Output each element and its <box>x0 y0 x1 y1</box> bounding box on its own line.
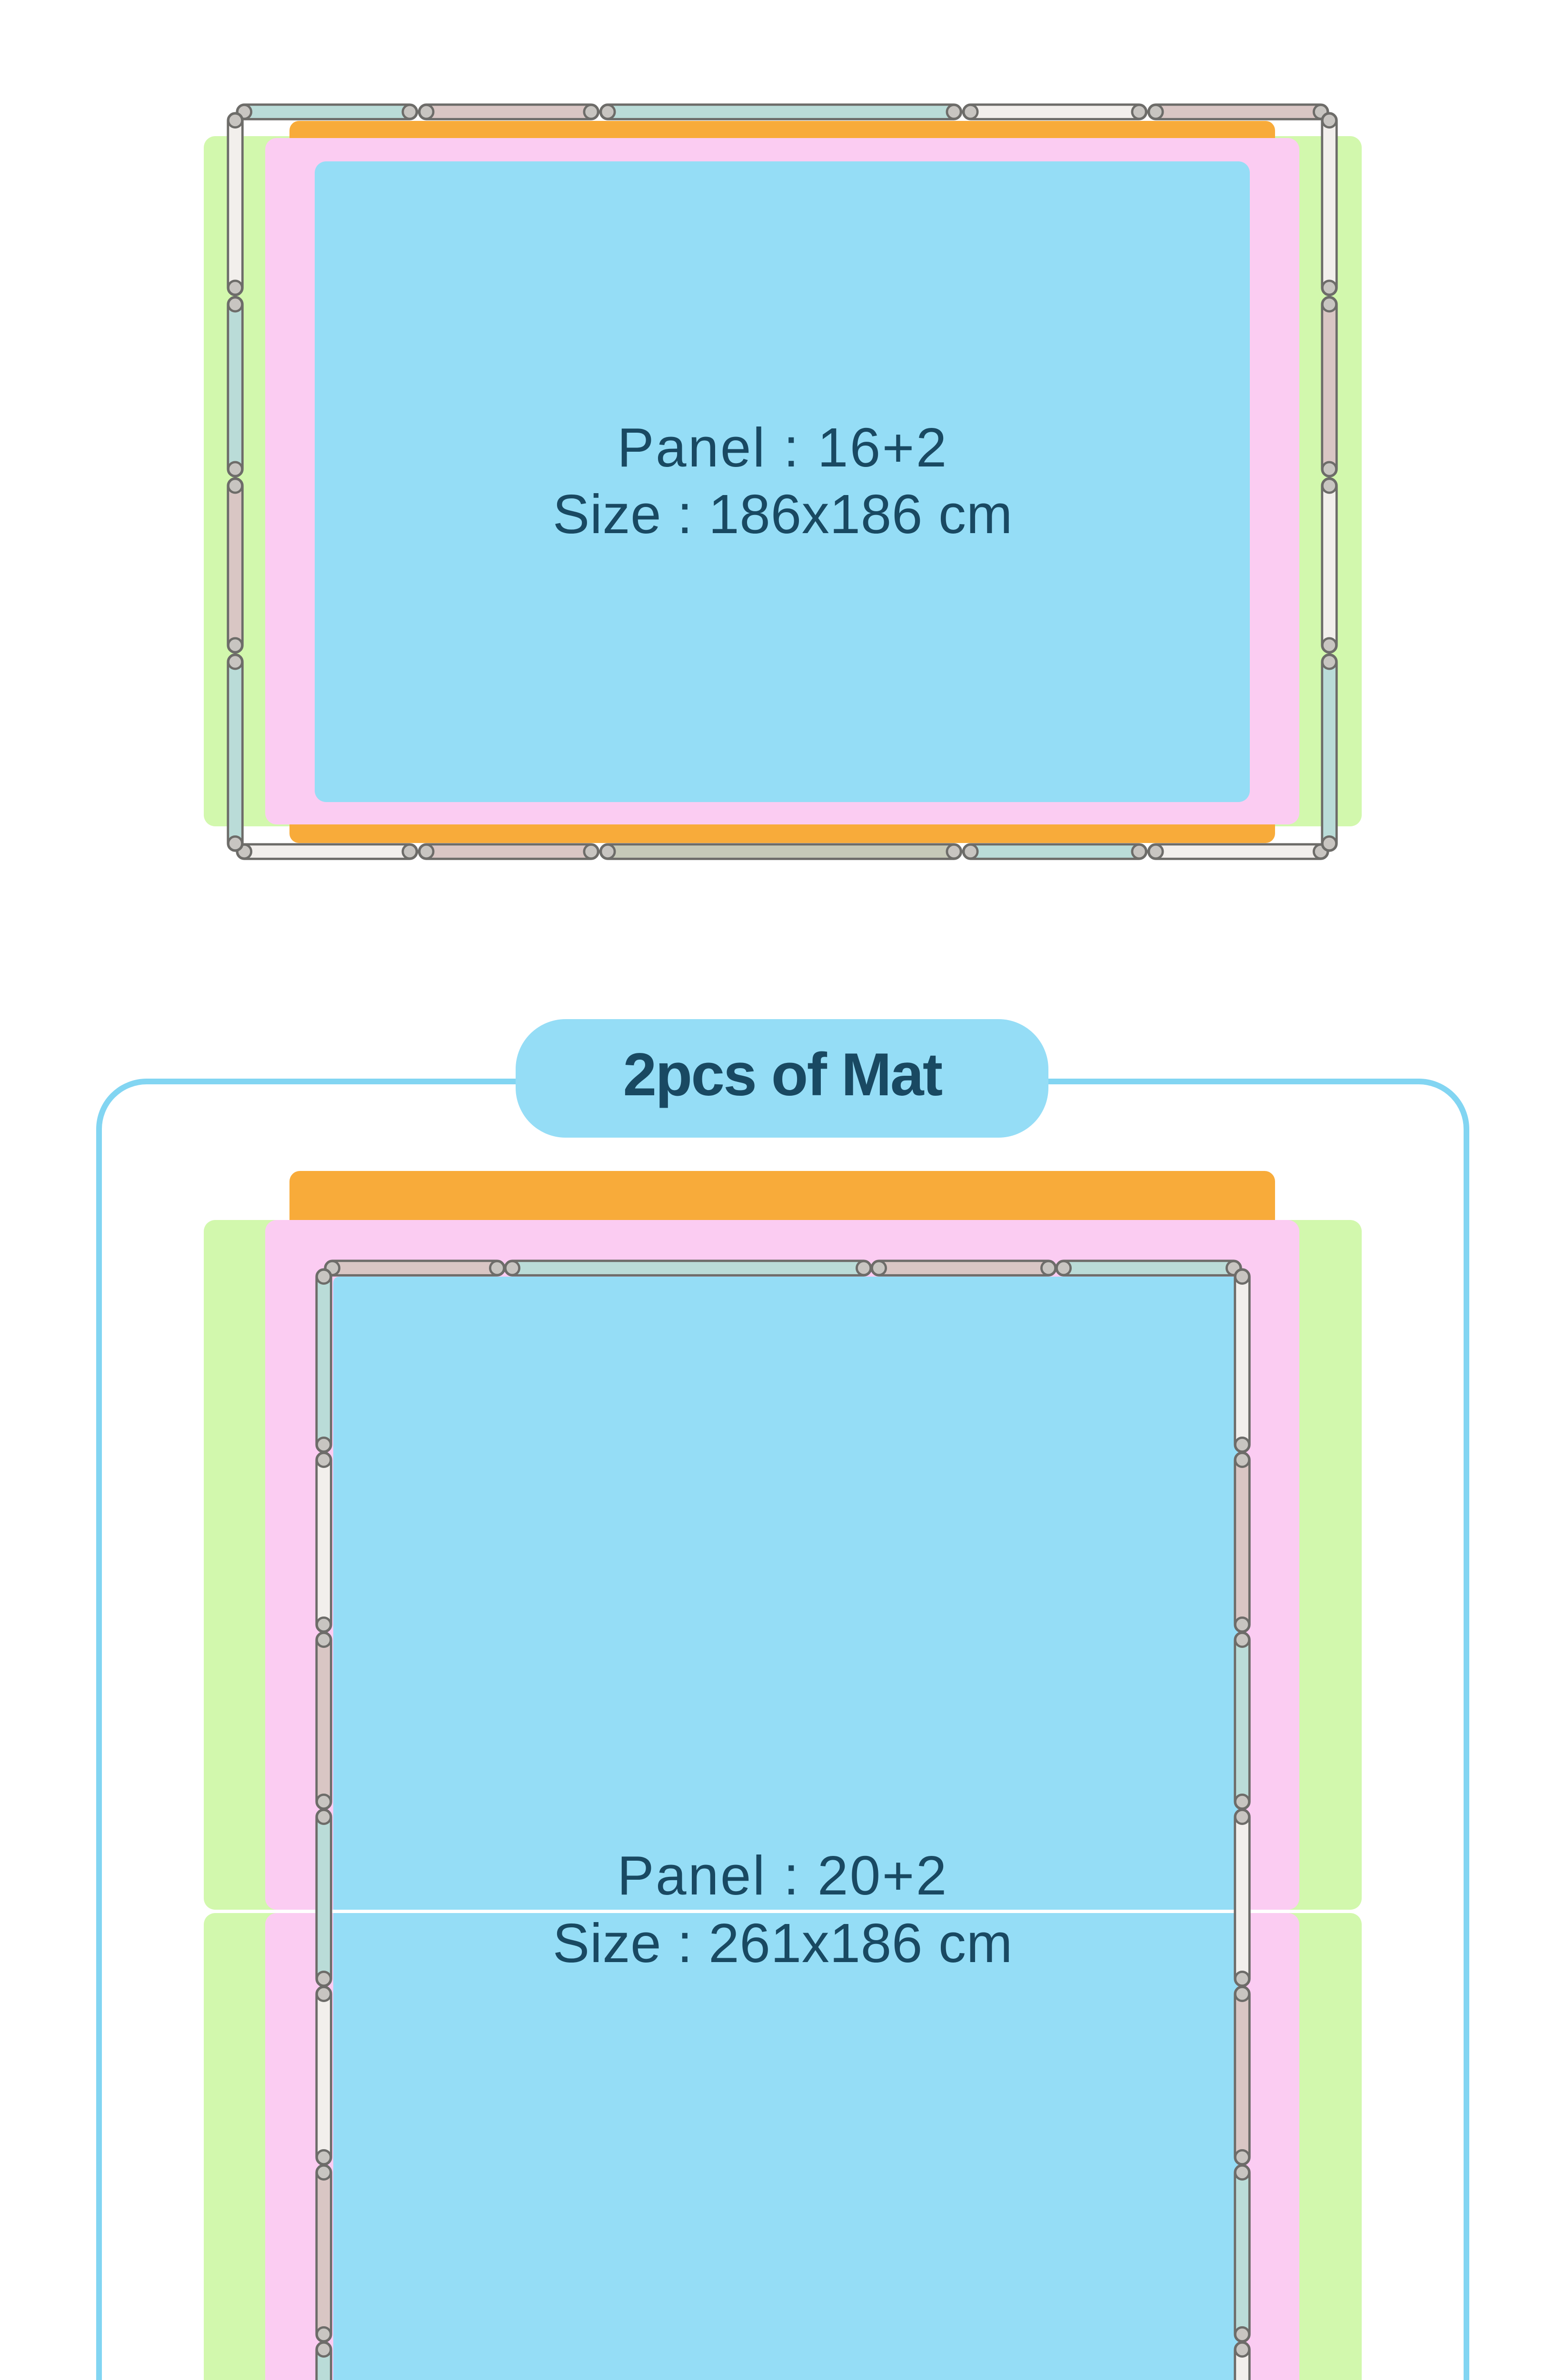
svg-text:Panel : 20+2: Panel : 20+2 <box>617 1844 948 1906</box>
svg-text:2pcs of Mat: 2pcs of Mat <box>623 1041 942 1108</box>
svg-text:Size : 186x186 cm: Size : 186x186 cm <box>553 483 1013 545</box>
svg-text:Panel : 16+2: Panel : 16+2 <box>617 416 948 478</box>
svg-text:Size : 261x186 cm: Size : 261x186 cm <box>553 1912 1013 1974</box>
